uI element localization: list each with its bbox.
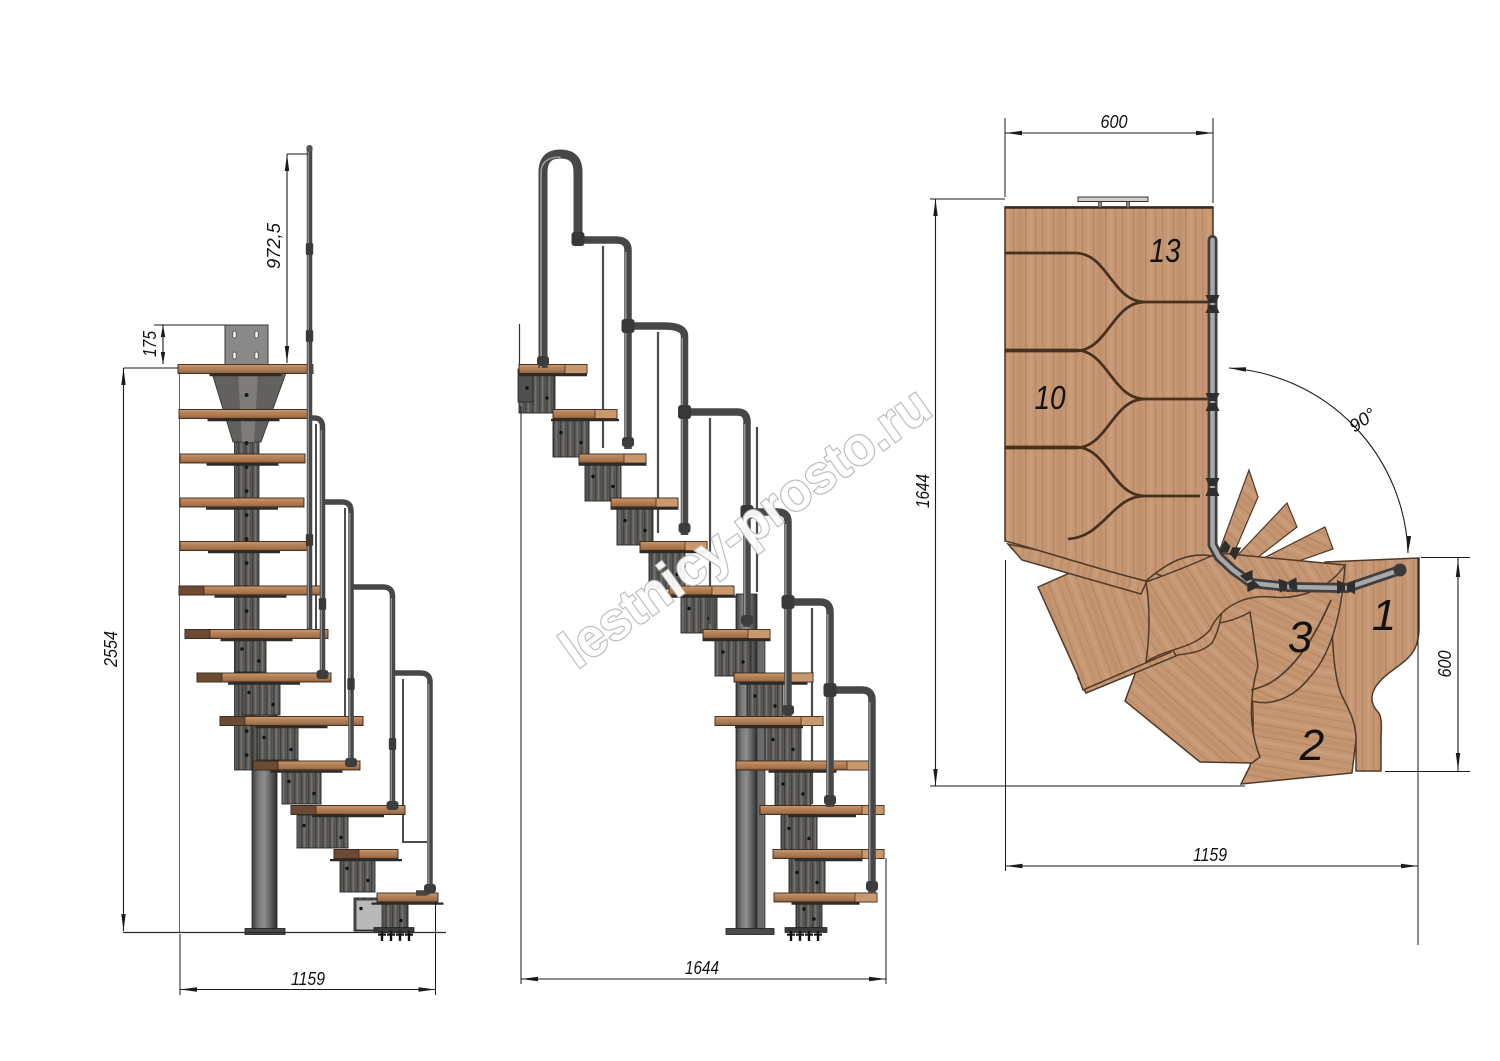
svg-text:2554: 2554 — [101, 631, 121, 668]
svg-text:600: 600 — [1101, 112, 1128, 132]
svg-text:1644: 1644 — [913, 474, 933, 508]
svg-text:1: 1 — [1372, 591, 1396, 640]
svg-text:10: 10 — [1035, 379, 1067, 416]
svg-text:1159: 1159 — [1193, 845, 1227, 865]
svg-text:2: 2 — [1299, 721, 1324, 770]
svg-text:13: 13 — [1150, 232, 1182, 269]
svg-text:1644: 1644 — [685, 958, 719, 978]
svg-text:1159: 1159 — [291, 969, 325, 989]
svg-text:3: 3 — [1288, 613, 1313, 662]
svg-text:972,5: 972,5 — [264, 222, 284, 269]
svg-text:175: 175 — [140, 330, 160, 357]
svg-text:600: 600 — [1435, 651, 1455, 678]
